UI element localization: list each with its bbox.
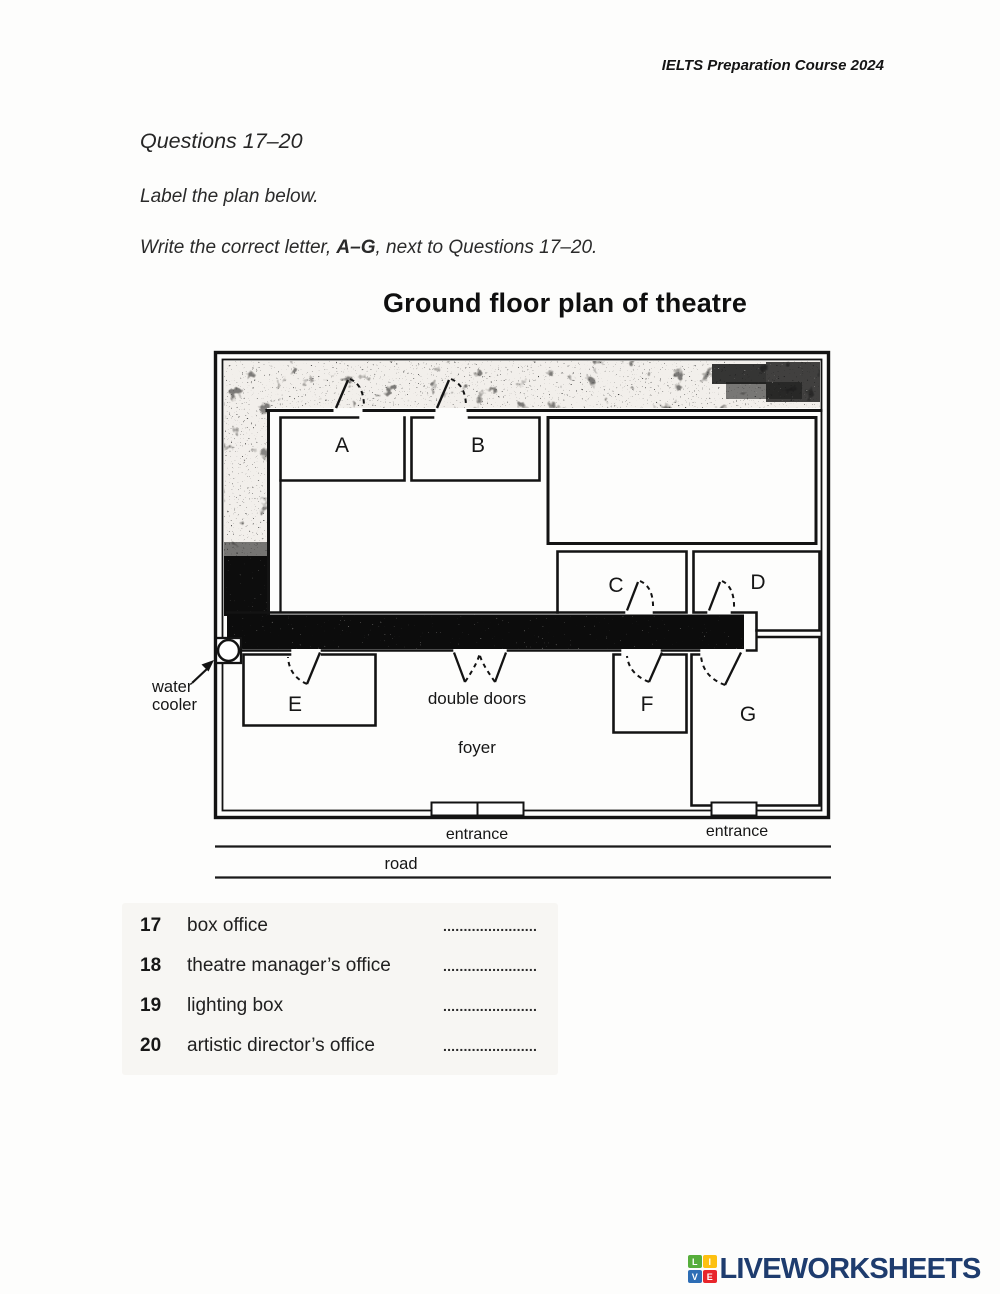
room-label-c: C — [608, 574, 623, 597]
question-number: 17 — [140, 915, 187, 937]
door-g — [701, 653, 741, 686]
double-doors-label: double doors — [428, 689, 526, 708]
answer-blank-20[interactable]: ....................... — [443, 1038, 537, 1054]
liveworksheets-logo-icon: L I V E — [688, 1255, 717, 1284]
answer-blank-19[interactable]: ....................... — [443, 998, 537, 1014]
instruction-line-2: Write the correct letter, A–G, next to Q… — [140, 237, 597, 259]
plan-walls — [227, 411, 821, 806]
instruction-line-2-suffix: , next to Questions 17–20. — [375, 237, 597, 258]
plan-outline — [216, 353, 829, 818]
logo-tile-i: I — [703, 1255, 717, 1269]
logo-tile-e: E — [703, 1270, 717, 1284]
questions-range: Questions 17–20 — [140, 129, 303, 154]
water-cooler-arrow — [192, 660, 214, 683]
room-label-b: B — [471, 434, 485, 457]
road-lines — [215, 847, 831, 878]
water-cooler-label-line2: cooler — [152, 696, 197, 714]
room-label-d: D — [750, 571, 765, 594]
door-f — [627, 653, 662, 683]
liveworksheets-wordmark: LIVEWORKSHEETS — [720, 1251, 981, 1287]
question-text: theatre manager’s office — [187, 955, 443, 977]
water-cooler — [216, 638, 241, 663]
answer-blank-18[interactable]: ....................... — [443, 958, 537, 974]
logo-tile-l: L — [688, 1255, 702, 1269]
room-label-g: G — [740, 703, 756, 726]
double-doors-symbol — [454, 653, 506, 683]
answer-blank-17[interactable]: ....................... — [443, 918, 537, 934]
question-row-18: 18theatre manager’s office..............… — [140, 955, 537, 983]
left-texture-strip — [224, 408, 267, 616]
question-number: 20 — [140, 1035, 187, 1057]
liveworksheets-logo: L I V E LIVEWORKSHEETS — [688, 1251, 981, 1287]
question-row-19: 19lighting box....................... — [140, 995, 537, 1023]
question-row-17: 17box office....................... — [140, 915, 537, 943]
large-hall-walls — [548, 418, 816, 544]
entrance-right-label: entrance — [706, 823, 768, 840]
question-number: 19 — [140, 995, 187, 1017]
question-text: artistic director’s office — [187, 1035, 443, 1057]
room-label-f: F — [641, 693, 654, 716]
instruction-line-1: Label the plan below. — [140, 186, 319, 208]
letter-range-bold: A–G — [336, 237, 375, 258]
entrance-left-door-1 — [432, 803, 478, 816]
room-e-walls — [244, 655, 376, 726]
worksheet-page: IELTS Preparation Course 2024 Questions … — [0, 0, 1000, 1294]
road-label: road — [384, 855, 417, 873]
foyer-label: foyer — [458, 738, 496, 757]
door-d — [709, 581, 734, 611]
water-cooler-label-line1: water — [151, 678, 193, 696]
stage-texture-strip — [224, 361, 820, 408]
question-text: box office — [187, 915, 443, 937]
door-c — [627, 581, 653, 611]
course-header: IELTS Preparation Course 2024 — [662, 57, 884, 74]
entrance-left-door-2 — [478, 803, 524, 816]
door-e — [288, 653, 320, 685]
question-row-20: 20artistic director’s office............… — [140, 1035, 537, 1063]
entrance-left-label: entrance — [446, 826, 508, 843]
question-text: lighting box — [187, 995, 443, 1017]
corridor-end-jog — [747, 631, 757, 651]
entrance-right-door — [712, 803, 757, 816]
question-number: 18 — [140, 955, 187, 977]
room-label-e: E — [288, 693, 302, 716]
room-label-a: A — [335, 434, 349, 457]
floor-plan: A B C D E F G water cooler double doors … — [140, 345, 835, 890]
plan-title: Ground floor plan of theatre — [265, 288, 865, 319]
corridor — [227, 615, 744, 650]
logo-tile-v: V — [688, 1270, 702, 1284]
instruction-line-2-prefix: Write the correct letter, — [140, 237, 336, 258]
